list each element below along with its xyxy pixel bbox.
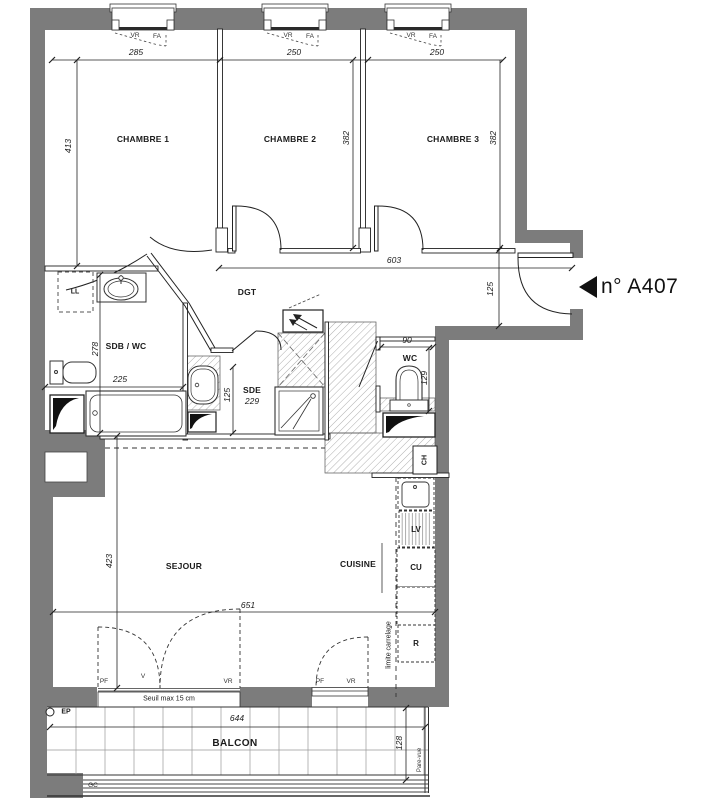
shaft-left xyxy=(50,395,84,433)
seuil-note: Seuil max 15 cm xyxy=(143,696,195,703)
entrance-arrow-icon xyxy=(579,276,597,298)
room-label-balcon: BALCON xyxy=(212,739,257,749)
window2-vr-label: VR xyxy=(283,33,292,40)
wall-niche xyxy=(45,452,87,482)
window3-fa-label: FA xyxy=(429,34,437,41)
french-window-swings xyxy=(98,609,368,688)
room-label-sde: SDE xyxy=(243,386,261,395)
window1-vr-label: VR xyxy=(130,33,139,40)
shaft-wc xyxy=(383,413,435,437)
dim-wc-width: 90 xyxy=(402,336,411,345)
floor-plan: CHAMBRE 1 CHAMBRE 2 CHAMBRE 3 DGT SDB / … xyxy=(0,0,704,800)
dim-sejour-width: 651 xyxy=(241,601,255,610)
window2-fa-label: FA xyxy=(306,34,314,41)
dim-sejour-depth: 423 xyxy=(105,554,114,568)
room-label-dgt: DGT xyxy=(238,288,257,297)
dim-sde-width: 125 xyxy=(223,388,232,402)
rainwater-label: EP xyxy=(61,709,70,716)
dim-dgt-length: 603 xyxy=(387,256,401,265)
dim-ch2-depth: 382 xyxy=(342,131,351,145)
cooker-label: CU xyxy=(410,564,422,572)
electrical-panel xyxy=(283,294,323,332)
fridge-label: R xyxy=(413,640,419,648)
kitchen-sink xyxy=(398,478,434,510)
dishwasher-label: LV xyxy=(411,526,421,534)
window3-vr-label: VR xyxy=(406,33,415,40)
room-label-chambre2: CHAMBRE 2 xyxy=(264,135,316,144)
room-label-chambre1: CHAMBRE 1 xyxy=(117,135,169,144)
dim-sde-229: 229 xyxy=(245,397,259,406)
south-windows xyxy=(98,688,368,708)
bathtub xyxy=(86,391,186,436)
sdb-washbasin xyxy=(97,273,146,302)
window1-fa-label: FA xyxy=(153,34,161,41)
south-vr2-label: VR xyxy=(346,679,355,686)
washing-machine-label: LL xyxy=(71,289,80,296)
sdb-toilet xyxy=(50,361,96,384)
window-chambre3 xyxy=(385,4,451,46)
sde-washbasin xyxy=(188,366,218,404)
room-label-chambre3: CHAMBRE 3 xyxy=(427,135,479,144)
room-label-wc: WC xyxy=(403,354,418,363)
room-label-sejour: SEJOUR xyxy=(166,562,202,571)
dim-ch3-width: 250 xyxy=(430,48,444,57)
south-pf1-label: PF xyxy=(100,679,108,686)
pare-vue-note: Pare-vue xyxy=(417,748,423,772)
dim-ch1-width: 285 xyxy=(129,48,143,57)
window-chambre1 xyxy=(110,4,176,46)
room-label-cuisine: CUISINE xyxy=(340,560,376,569)
shaft-sde xyxy=(188,412,216,432)
dim-entry-width: 125 xyxy=(486,282,495,296)
apartment-number: n° A407 xyxy=(601,275,678,299)
limite-carrelage-note: limite carrelage xyxy=(386,621,393,668)
railing-label: GC xyxy=(88,783,98,790)
balcony-railing xyxy=(47,780,430,796)
shower-tray xyxy=(275,387,323,435)
south-v-label: V xyxy=(141,674,145,681)
dim-ch2-width: 250 xyxy=(287,48,301,57)
south-pf2-label: PF xyxy=(316,679,324,686)
finish-limit-lines xyxy=(105,448,396,697)
dim-balcon-depth: 128 xyxy=(395,736,404,750)
dim-ch1-depth: 413 xyxy=(64,139,73,153)
window-chambre2 xyxy=(262,4,328,46)
dim-balcon-width: 644 xyxy=(230,714,244,723)
dim-sdb-depth: 278 xyxy=(91,342,100,356)
room-label-sdb-wc: SDB / WC xyxy=(106,342,147,351)
counter-slot xyxy=(397,587,435,625)
boiler-label: CH xyxy=(422,455,429,465)
dim-ch3-depth: 382 xyxy=(489,131,498,145)
dim-sdb-width: 225 xyxy=(113,375,127,384)
facade-windows xyxy=(110,4,451,46)
rainwater-pipe xyxy=(46,708,54,716)
dim-wc-depth: 129 xyxy=(420,371,429,385)
south-vr1-label: VR xyxy=(223,679,232,686)
